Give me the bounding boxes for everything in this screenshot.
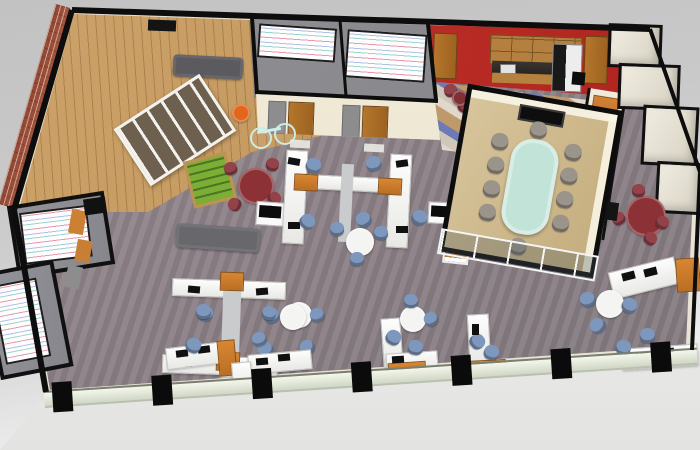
chair-blue bbox=[578, 290, 597, 309]
conference-room bbox=[438, 84, 623, 279]
chair-gray bbox=[551, 213, 571, 233]
chair-maroon bbox=[265, 157, 281, 173]
chair-gray bbox=[555, 190, 575, 210]
structural-column bbox=[51, 381, 73, 412]
wall-screen bbox=[148, 20, 176, 32]
chair-maroon bbox=[632, 184, 645, 197]
chair-gray bbox=[478, 203, 498, 223]
monitor bbox=[472, 324, 479, 335]
chair-blue bbox=[364, 154, 382, 172]
desk bbox=[386, 153, 413, 248]
cabinet-orange bbox=[220, 272, 245, 292]
bench-sofa bbox=[175, 223, 260, 253]
monitor bbox=[288, 222, 300, 229]
structural-column bbox=[351, 361, 373, 392]
chair-blue bbox=[350, 252, 364, 266]
monitor bbox=[188, 285, 201, 293]
chair-gray bbox=[482, 179, 502, 199]
structural-column bbox=[550, 348, 572, 379]
round-table bbox=[596, 290, 624, 318]
structural-column bbox=[151, 375, 173, 406]
cabinet-orange bbox=[294, 173, 319, 191]
chair-blue bbox=[404, 294, 418, 308]
monitor bbox=[392, 356, 404, 364]
chair-gray bbox=[559, 166, 579, 186]
monitor bbox=[278, 353, 291, 361]
door-mat bbox=[290, 139, 310, 148]
trash-bin bbox=[571, 71, 585, 85]
wall-panel-orange bbox=[74, 239, 93, 263]
round-table bbox=[280, 304, 306, 330]
chair-gray bbox=[563, 143, 583, 163]
cabinet-orange bbox=[378, 177, 403, 195]
sofa bbox=[172, 54, 243, 80]
structural-column bbox=[650, 341, 672, 372]
chair-gray bbox=[486, 155, 506, 175]
cabinet-orange bbox=[675, 257, 700, 293]
chair-blue bbox=[196, 304, 211, 319]
structural-column bbox=[251, 368, 273, 399]
wall-corner-block bbox=[83, 197, 107, 216]
monitor bbox=[256, 357, 269, 365]
chair-blue bbox=[353, 209, 373, 229]
chair-blue bbox=[587, 315, 608, 336]
wall-panel-gray bbox=[64, 265, 83, 290]
chair-gray bbox=[490, 132, 510, 152]
office-floorplan-render bbox=[0, 0, 700, 450]
chair-blue bbox=[410, 208, 430, 228]
door-mat bbox=[364, 143, 384, 152]
structural-column bbox=[451, 355, 473, 386]
beanbag bbox=[232, 104, 250, 122]
monitor bbox=[396, 226, 408, 233]
monitor bbox=[256, 287, 269, 295]
chair-blue bbox=[640, 328, 655, 343]
chair-blue bbox=[374, 226, 388, 240]
chair-blue bbox=[330, 222, 344, 236]
round-table bbox=[400, 306, 426, 332]
